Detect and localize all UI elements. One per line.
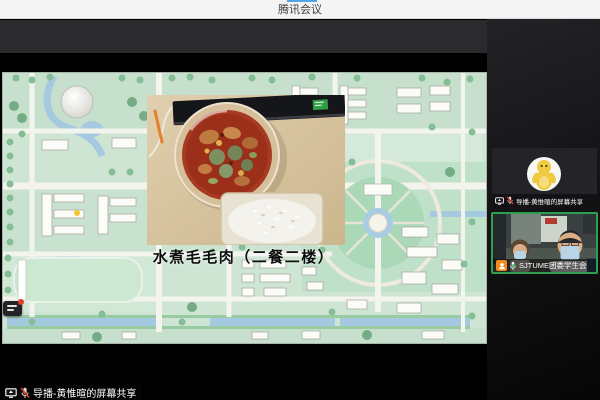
- participant-name: 导播-黄惟暄的屏幕共享: [516, 196, 583, 206]
- participant-tile-speaker[interactable]: SJTUME团委学生会: [491, 212, 598, 274]
- mic-muted-icon: [20, 387, 30, 399]
- shared-app-dark-strip: [0, 20, 487, 53]
- notification-dot: [18, 299, 24, 305]
- presenter-label: 导播-黄惟暄的屏幕共享: [33, 385, 136, 400]
- title-bar[interactable]: 腾讯会议: [0, 0, 600, 19]
- window-title: 腾讯会议: [278, 1, 322, 17]
- meeting-window: 腾讯会议: [0, 0, 600, 400]
- mic-muted-icon: [506, 196, 514, 205]
- top-accent-line: [287, 0, 317, 2]
- screen-share-view: 水煮毛毛肉（二餐二楼）: [0, 19, 487, 400]
- meeting-main-area: 水煮毛毛肉（二餐二楼）: [0, 19, 600, 400]
- participant-label-bar: 导播-黄惟暄的屏幕共享: [492, 194, 597, 207]
- participants-sidebar: 导播-黄惟暄的屏幕共享: [487, 19, 600, 400]
- participant-label-bar: SJTUME团委学生会: [493, 259, 596, 272]
- participant-name: SJTUME团委学生会: [519, 260, 587, 271]
- dish-caption: 水煮毛毛肉（二餐二楼）: [40, 246, 447, 267]
- member-role-icon: [496, 260, 507, 271]
- floating-message-widget[interactable]: [3, 301, 22, 316]
- mic-on-icon: [509, 261, 517, 271]
- presenter-badge: 导播-黄惟暄的屏幕共享: [2, 385, 142, 400]
- participant-tile-presenter[interactable]: 导播-黄惟暄的屏幕共享: [492, 148, 597, 207]
- screen-share-icon: [5, 388, 17, 398]
- widget-line: [7, 309, 14, 311]
- widget-line: [7, 305, 17, 307]
- food-photo-overlay: [147, 95, 345, 245]
- screen-share-icon: [495, 197, 504, 205]
